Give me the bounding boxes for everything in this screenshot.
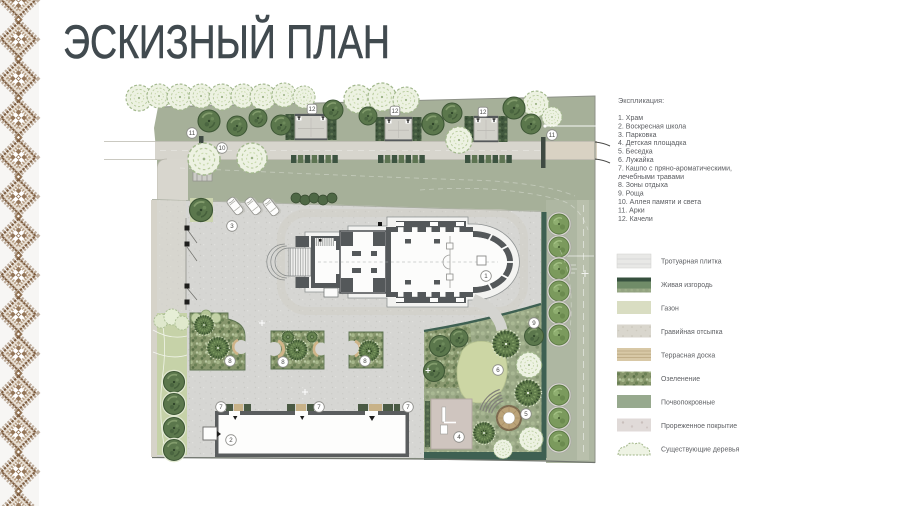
svg-text:11: 11 <box>549 132 556 139</box>
svg-text:Живая изгородь: Живая изгородь <box>661 282 713 289</box>
svg-text:4. Детская площадка: 4. Детская площадка <box>618 140 686 147</box>
svg-text:Газон: Газон <box>661 306 679 313</box>
svg-text:1: 1 <box>484 273 488 280</box>
svg-text:12. Качели: 12. Качели <box>618 216 653 223</box>
svg-text:12: 12 <box>392 108 399 115</box>
svg-text:5. Беседка: 5. Беседка <box>618 149 653 156</box>
svg-text:2: 2 <box>229 437 233 444</box>
svg-text:7: 7 <box>406 404 410 411</box>
svg-text:Существующие деревья: Существующие деревья <box>661 447 740 454</box>
svg-text:Почвопокровные: Почвопокровные <box>661 400 715 407</box>
svg-text:Экспликация:: Экспликация: <box>618 96 664 105</box>
svg-text:9. Роща: 9. Роща <box>618 191 644 198</box>
svg-text:8: 8 <box>363 358 367 365</box>
svg-text:6: 6 <box>496 367 500 374</box>
svg-text:лечебными травами: лечебными травами <box>618 173 684 181</box>
svg-text:6. Лужайка: 6. Лужайка <box>618 156 654 164</box>
svg-text:12: 12 <box>309 106 316 113</box>
svg-text:Гравийная отсыпка: Гравийная отсыпка <box>661 328 723 336</box>
svg-text:12: 12 <box>480 109 487 116</box>
svg-text:4: 4 <box>457 434 461 441</box>
svg-text:10. Аллея памяти и света: 10. Аллея памяти и света <box>618 199 701 206</box>
svg-text:7: 7 <box>317 404 321 411</box>
svg-text:Тротуарная плитка: Тротуарная плитка <box>661 259 722 266</box>
svg-text:3: 3 <box>230 223 234 230</box>
svg-text:2. Воскресная школа: 2. Воскресная школа <box>618 123 686 130</box>
svg-text:8: 8 <box>228 358 232 365</box>
svg-text:8: 8 <box>281 359 285 366</box>
svg-text:9: 9 <box>532 320 536 327</box>
svg-text:8. Зоны отдыха: 8. Зоны отдыха <box>618 182 668 189</box>
svg-text:ЭСКИЗНЫЙ ПЛАН: ЭСКИЗНЫЙ ПЛАН <box>63 15 390 68</box>
svg-text:7. Кашпо с пряно-ароматическим: 7. Кашпо с пряно-ароматическими, <box>618 165 732 172</box>
svg-text:1. Храм: 1. Храм <box>618 115 643 122</box>
svg-text:5: 5 <box>524 411 528 418</box>
svg-text:Озеленение: Озеленение <box>661 376 700 383</box>
svg-text:11: 11 <box>189 130 196 137</box>
svg-text:11. Арки: 11. Арки <box>618 207 645 214</box>
svg-text:10: 10 <box>219 145 226 152</box>
svg-text:Прореженное покрытие: Прореженное покрытие <box>661 423 737 430</box>
svg-text:Террасная доска: Террасная доска <box>661 353 715 360</box>
svg-text:3. Парковка: 3. Парковка <box>618 132 657 139</box>
svg-text:7: 7 <box>219 404 223 411</box>
